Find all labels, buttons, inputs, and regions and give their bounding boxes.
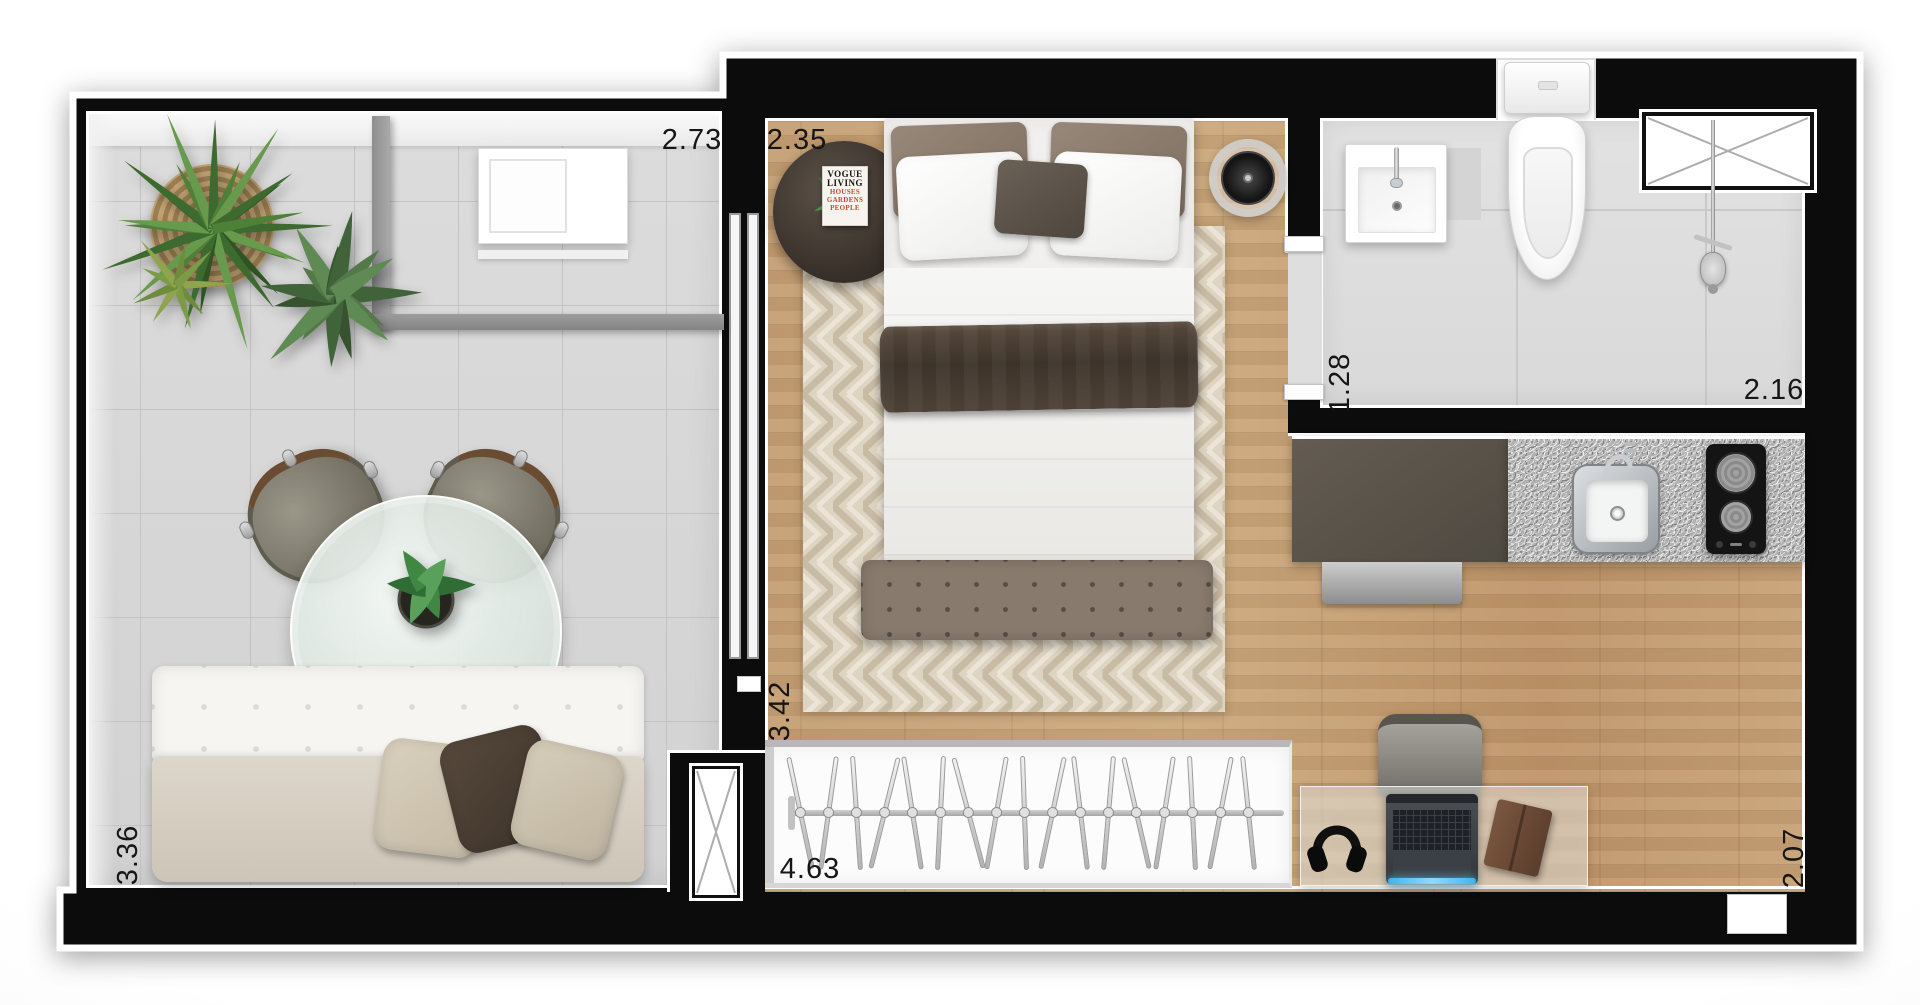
sink-backsplash [1443, 148, 1481, 220]
clothes-hanger [1020, 756, 1029, 870]
sliding-door-pane [747, 213, 759, 659]
ac-unit-shelf [478, 250, 628, 259]
fan-hub [1243, 173, 1253, 183]
structural-column-symbol [692, 766, 740, 898]
toilet-cistern [1504, 62, 1590, 114]
bathroom-door-threshold [1284, 384, 1324, 400]
kitchen-sink-drain [1610, 506, 1625, 521]
laptop-palmrest [1393, 854, 1471, 874]
clothes-hanger [1101, 756, 1116, 870]
dim-balcony-depth: 3.36 [113, 818, 143, 892]
bathroom-door-opening [1288, 250, 1322, 388]
magazine-title: LIVING [825, 179, 865, 188]
magazine-subtitle: GARDENS [825, 196, 865, 204]
bed-foot-bench [861, 560, 1213, 640]
cooktop-burner [1719, 500, 1753, 534]
headphones-icon [1304, 804, 1370, 874]
bathroom-sink [1345, 144, 1447, 243]
cooktop-display [1730, 543, 1742, 546]
wall-seam [667, 750, 670, 892]
magazine-subtitle: PEOPLE [825, 204, 865, 212]
laptop-light-strip [1388, 878, 1476, 884]
hanger-rail [788, 810, 1284, 816]
service-shaft-symbol [1642, 112, 1814, 190]
entry-threshold [737, 676, 761, 692]
kitchen-faucet-icon [1596, 438, 1644, 478]
floor-plan-canvas: VOGUE LIVING HOUSES GARDENS PEOPLE [0, 0, 1920, 1005]
monstera-plant-icon [358, 528, 498, 668]
ac-unit-grille [489, 159, 567, 233]
bottom-right-threshold [1727, 894, 1787, 934]
dim-balcony-width: 2.73 [655, 125, 729, 155]
dim-bedroom-depth: 3.42 [765, 674, 795, 748]
clothes-hanger [935, 756, 946, 870]
cooktop-burner [1715, 452, 1757, 494]
wall-seam [667, 750, 765, 753]
shower-knob [1708, 284, 1718, 294]
sink-faucet-head [1390, 178, 1403, 188]
dim-closet-width: 4.63 [773, 854, 847, 884]
bed-duvet [884, 268, 1194, 564]
dim-bedroom-width: 2.35 [760, 125, 834, 155]
sink-drain [1392, 201, 1402, 211]
notebook-crease [1508, 804, 1526, 871]
cooktop [1706, 444, 1766, 554]
sliding-door-pane [729, 213, 741, 659]
shower-pipe [1711, 120, 1715, 254]
laptop-icon [1386, 794, 1478, 884]
ac-unit-cabinet [478, 148, 628, 244]
toilet-bowl-inner [1523, 147, 1573, 259]
floor-fan-icon [1209, 139, 1287, 217]
dim-living-depth: 2.07 [1779, 821, 1809, 895]
laptop-keyboard [1393, 810, 1471, 850]
kitchen-appliance [1322, 562, 1462, 604]
dim-bathroom-width: 2.16 [1737, 375, 1811, 405]
magazine-subtitle: HOUSES [825, 188, 865, 196]
double-bed [884, 118, 1194, 564]
sink-faucet [1394, 147, 1399, 181]
cooktop-knob [1749, 541, 1756, 548]
balcony-sliding-door [727, 213, 763, 659]
cooktop-controls [1716, 540, 1756, 548]
dim-bath-entry-depth: 1.28 [1325, 346, 1355, 420]
kitchen-cabinet [1292, 436, 1510, 562]
cooktop-knob [1716, 541, 1723, 548]
clothes-hanger [850, 756, 863, 870]
toilet-flush-button [1538, 81, 1558, 90]
shower-head [1700, 252, 1726, 286]
bathroom-door-threshold [1284, 236, 1324, 252]
magazine-cover: VOGUE LIVING HOUSES GARDENS PEOPLE [822, 166, 868, 226]
closet-hanger-rail [788, 746, 1284, 884]
laptop-hinge [1386, 794, 1478, 803]
clothes-hanger [1187, 756, 1198, 870]
agave-plant-icon [235, 195, 435, 395]
bed-throw-blanket [879, 321, 1198, 413]
bed-cushion-dark [994, 159, 1089, 239]
